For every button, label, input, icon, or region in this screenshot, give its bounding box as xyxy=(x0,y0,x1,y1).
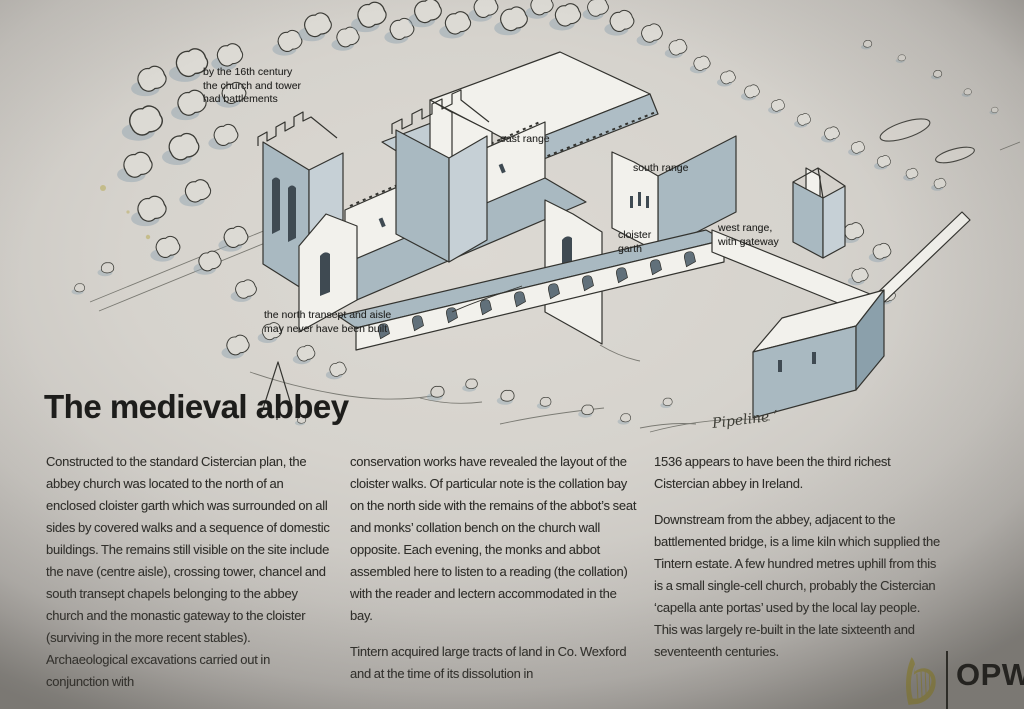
harp-icon xyxy=(902,655,938,707)
paragraph: Constructed to the standard Cistercian p… xyxy=(46,451,334,693)
paragraph: Tintern acquired large tracts of land in… xyxy=(350,641,638,685)
label-north-transept: the north transept and aisle may never h… xyxy=(264,309,391,336)
body-text-columns: Constructed to the standard Cistercian p… xyxy=(46,451,942,707)
label-south-range: south range xyxy=(633,162,688,176)
paragraph: conservation works have revealed the lay… xyxy=(350,451,638,627)
logo-divider xyxy=(946,651,948,709)
page-title: The medieval abbey xyxy=(44,388,349,426)
opw-wordmark: OPW xyxy=(956,657,1024,693)
crossing-tower-side xyxy=(449,136,487,262)
paragraph: Downstream from the abbey, adjacent to t… xyxy=(654,509,942,663)
paragraph: 1536 appears to have been the third rich… xyxy=(654,451,942,495)
label-battlements: by the 16th century the church and tower… xyxy=(203,66,301,107)
text-column-2: conservation works have revealed the lay… xyxy=(350,451,638,707)
abbey-buildings xyxy=(258,52,970,420)
west-tower-battlements xyxy=(258,112,337,146)
opw-logo: OPW xyxy=(884,649,1024,709)
label-east-range: east range xyxy=(500,133,550,147)
text-column-1: Constructed to the standard Cistercian p… xyxy=(46,451,334,707)
abbey-illustration xyxy=(0,0,1024,450)
west-front-lancet xyxy=(320,252,330,296)
interpretive-sign-panel: by the 16th century the church and tower… xyxy=(0,0,1024,709)
gate-tower-side xyxy=(823,186,845,258)
label-cloister-garth: cloister garth xyxy=(618,229,651,256)
label-west-range: west range, with gateway xyxy=(718,222,779,249)
